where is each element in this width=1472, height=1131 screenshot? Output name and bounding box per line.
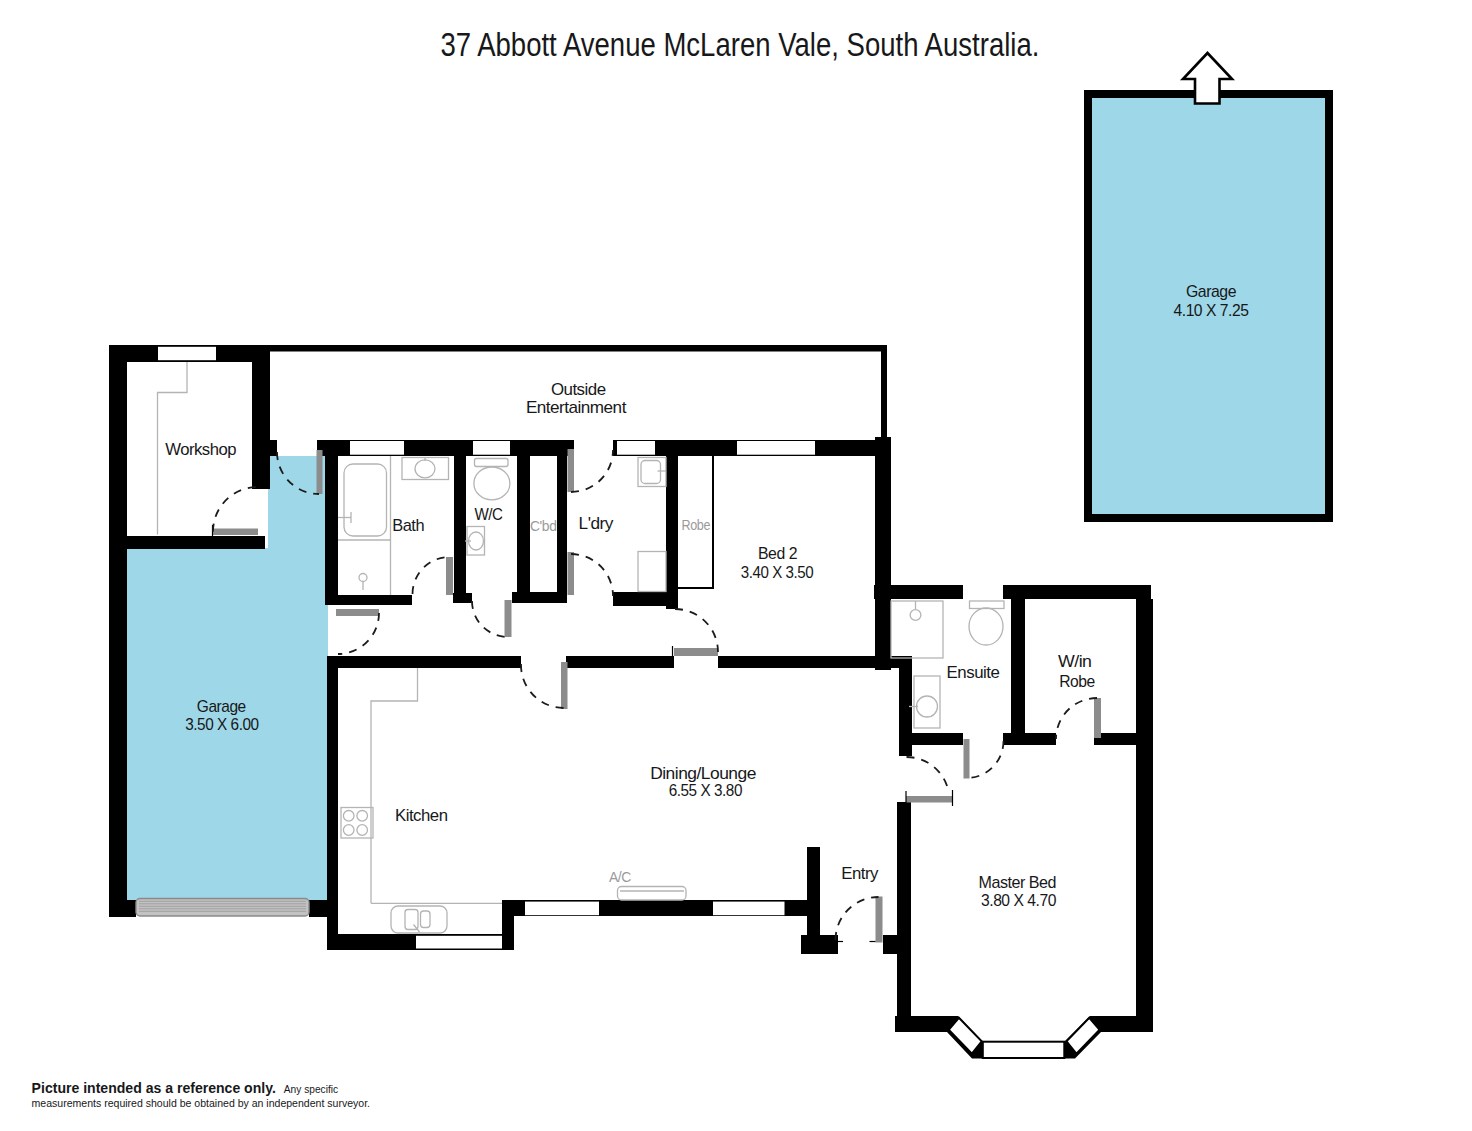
svg-text:measurements required should b: measurements required should be obtained…	[32, 1097, 370, 1109]
svg-text:A/C: A/C	[609, 869, 631, 885]
svg-text:37 Abbott Avenue McLaren Vale,: 37 Abbott Avenue McLaren Vale, South Aus…	[440, 26, 1039, 63]
svg-text:Bed 2: Bed 2	[758, 544, 797, 563]
svg-text:Outside: Outside	[551, 380, 606, 399]
svg-text:Robe: Robe	[681, 516, 710, 533]
svg-text:Robe: Robe	[1059, 672, 1095, 691]
svg-text:Any specific: Any specific	[284, 1083, 339, 1095]
svg-text:Picture intended as a referenc: Picture intended as a reference only.	[32, 1079, 276, 1096]
svg-text:Bath: Bath	[392, 516, 424, 535]
svg-text:W/in: W/in	[1058, 652, 1091, 671]
svg-text:3.50 X 6.00: 3.50 X 6.00	[185, 715, 258, 734]
svg-text:L'dry: L'dry	[579, 514, 614, 533]
svg-text:Entertainment: Entertainment	[526, 398, 627, 417]
svg-text:Garage: Garage	[197, 697, 246, 716]
svg-text:3.40 X 3.50: 3.40 X 3.50	[741, 563, 813, 582]
svg-text:4.10 X 7.25: 4.10 X 7.25	[1174, 301, 1249, 320]
svg-text:W/C: W/C	[474, 505, 502, 524]
svg-text:3.80 X 4.70: 3.80 X 4.70	[981, 891, 1056, 910]
svg-text:Master Bed: Master Bed	[979, 873, 1057, 892]
svg-text:Ensuite: Ensuite	[947, 663, 1000, 682]
svg-text:Workshop: Workshop	[165, 440, 236, 459]
svg-text:C'bd: C'bd	[530, 517, 557, 534]
svg-text:Garage: Garage	[1186, 282, 1236, 301]
svg-text:Kitchen: Kitchen	[395, 806, 448, 825]
svg-text:Entry: Entry	[841, 864, 879, 883]
svg-text:6.55 X 3.80: 6.55 X 3.80	[669, 781, 742, 800]
